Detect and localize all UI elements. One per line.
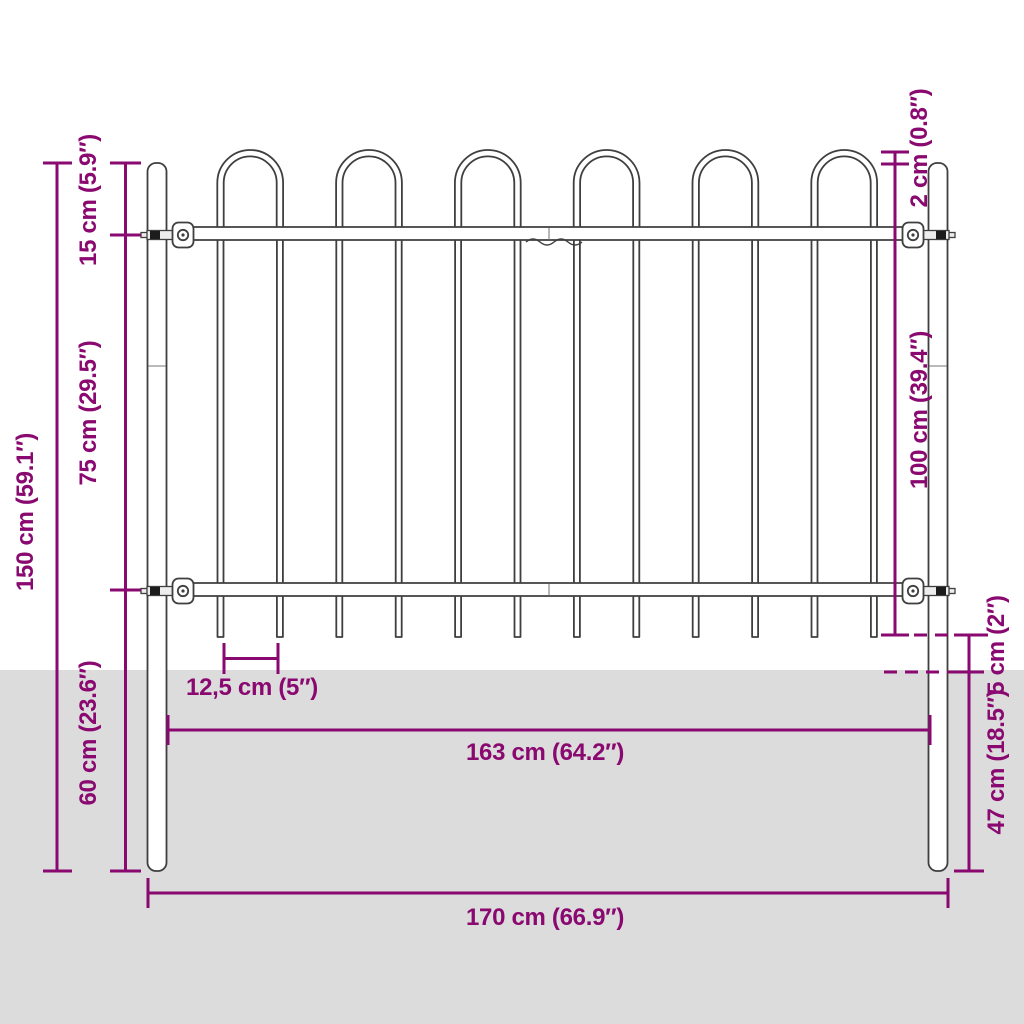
fence-bar bbox=[752, 230, 758, 637]
dim-label-hoop-above-post: 2 cm (0.8″) bbox=[908, 89, 932, 208]
fence-hoop-inner-outline bbox=[699, 156, 752, 231]
fence-bar bbox=[336, 230, 342, 637]
dim-label-bar-spacing: 12,5 cm (5″) bbox=[186, 676, 318, 700]
dimension-line-bar-spacing bbox=[224, 643, 278, 674]
dim-label-rail-spacing: 75 cm (29.5″) bbox=[77, 340, 101, 485]
fence-hoop-inner-outline bbox=[224, 156, 277, 231]
fence-post-right bbox=[929, 163, 948, 871]
dim-label-total-height: 150 cm (59.1″) bbox=[14, 433, 38, 591]
fence-bar bbox=[693, 230, 699, 637]
diagram-canvas: 150 cm (59.1″) 15 cm (5.9″) 75 cm (29.5″… bbox=[0, 0, 1024, 1024]
dim-label-hoop-to-rail: 15 cm (5.9″) bbox=[77, 134, 101, 266]
top-rail bbox=[193, 227, 905, 245]
bottom-rail bbox=[193, 583, 905, 596]
fence-post-left bbox=[148, 163, 167, 871]
fence-hoop-inner-outline bbox=[818, 156, 871, 231]
fence-bar bbox=[277, 230, 283, 637]
dim-label-spike-clearance: 5 cm (2″) bbox=[985, 595, 1009, 695]
fence-bar bbox=[574, 230, 580, 637]
fence-bar bbox=[633, 230, 639, 637]
fence-bar bbox=[871, 230, 877, 637]
dim-label-panel-width: 163 cm (64.2″) bbox=[466, 741, 624, 765]
fence-hoop-inner-outline bbox=[343, 156, 396, 231]
fence-bar bbox=[812, 230, 818, 637]
dim-label-panel-height: 100 cm (39.4″) bbox=[908, 331, 932, 489]
fence-diagram bbox=[0, 0, 1024, 1024]
fence-panel bbox=[217, 150, 877, 637]
fence-bar bbox=[218, 230, 224, 637]
dim-label-post-below-rail: 60 cm (23.6″) bbox=[77, 660, 101, 805]
fence-hoop-inner-outline bbox=[461, 156, 514, 231]
fence-bar bbox=[396, 230, 402, 637]
dim-label-total-width: 170 cm (66.9″) bbox=[466, 906, 624, 930]
fence-hoop-inner-outline bbox=[580, 156, 633, 231]
fence-bar bbox=[455, 230, 461, 637]
dim-label-underground: 47 cm (18.5″) bbox=[985, 689, 1009, 834]
fence-bar bbox=[515, 230, 521, 637]
